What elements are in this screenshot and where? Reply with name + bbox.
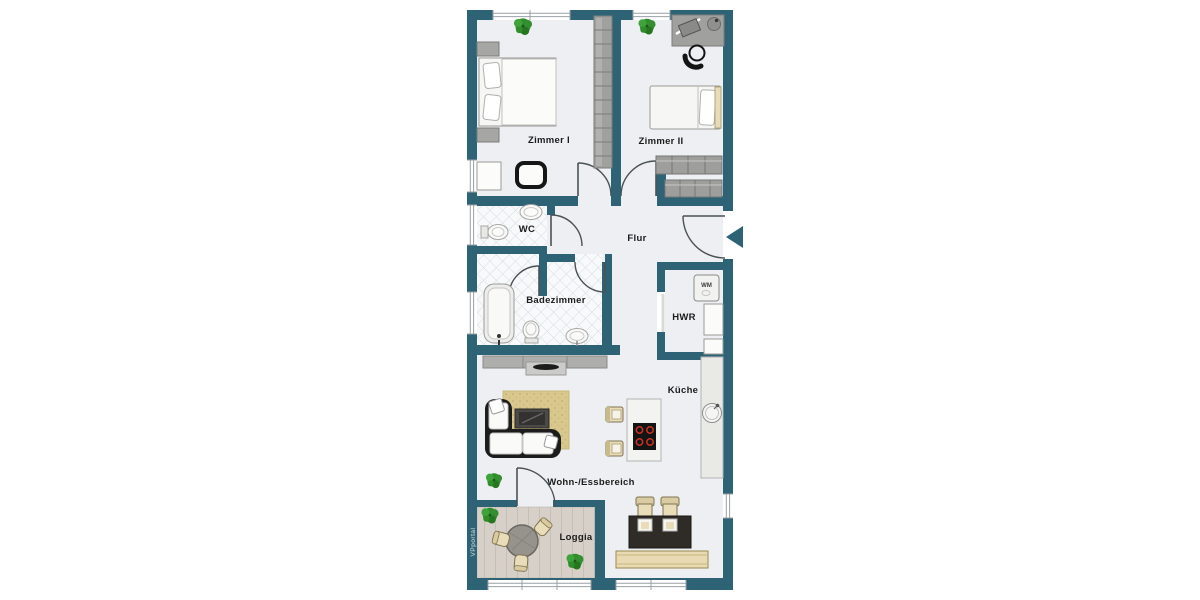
room-label-flur: Flur xyxy=(627,233,646,244)
window-left-zimmer1 xyxy=(467,160,477,192)
washing-machine-label: WM xyxy=(701,283,712,289)
dresser xyxy=(477,162,501,190)
desk-lamp-icon xyxy=(708,18,721,31)
nightstand xyxy=(477,128,499,142)
bath-toilet xyxy=(523,321,539,343)
hwr-shelf xyxy=(704,339,723,354)
floor-plan-page: Zimmer I Zimmer II xyxy=(0,0,1200,600)
dining-chair xyxy=(636,497,654,517)
sideboard xyxy=(616,551,708,568)
bar-chair xyxy=(606,407,623,422)
kitchen-island xyxy=(627,399,661,461)
wardrobe xyxy=(594,16,612,168)
wc-sink xyxy=(520,205,542,220)
desk xyxy=(672,15,724,46)
window-top-zimmer1 xyxy=(493,10,570,20)
door-hwr xyxy=(657,292,665,332)
bathtub xyxy=(484,284,514,345)
kitchen-counter xyxy=(701,357,723,478)
room-label-zimmer2: Zimmer II xyxy=(639,136,684,147)
armchair xyxy=(517,163,545,187)
nightstand xyxy=(477,42,499,56)
tv-icon xyxy=(533,364,559,370)
double-bed xyxy=(479,58,556,126)
room-label-badezimmer: Badezimmer xyxy=(526,295,586,306)
window-bottom-loggia xyxy=(488,580,591,590)
bar-chair xyxy=(606,441,623,456)
window-bottom-dining xyxy=(616,580,686,590)
loggia-chair xyxy=(514,554,528,571)
coffee-table xyxy=(515,409,549,428)
room-label-wohn-essbereich: Wohn-/Essbereich xyxy=(547,477,635,488)
window-right-dining xyxy=(723,494,733,518)
room-label-hwr: HWR xyxy=(672,312,696,323)
room-label-kueche: Küche xyxy=(668,385,699,396)
loggia-table xyxy=(506,525,538,557)
window-top-zimmer2 xyxy=(633,10,670,20)
room-label-zimmer1: Zimmer I xyxy=(528,135,570,146)
washing-machine: WM xyxy=(694,275,719,301)
window-left-bad xyxy=(467,292,477,334)
dining-chair xyxy=(661,497,679,517)
window-left-wc xyxy=(467,205,477,245)
single-bed xyxy=(650,86,721,129)
room-label-wc: WC xyxy=(519,224,535,235)
wc-toilet xyxy=(481,225,508,240)
watermark: VPportal xyxy=(470,527,477,556)
room-label-loggia: Loggia xyxy=(560,532,593,543)
hwr-shelf xyxy=(704,304,723,335)
floor-plan: Zimmer I Zimmer II xyxy=(0,0,1200,600)
